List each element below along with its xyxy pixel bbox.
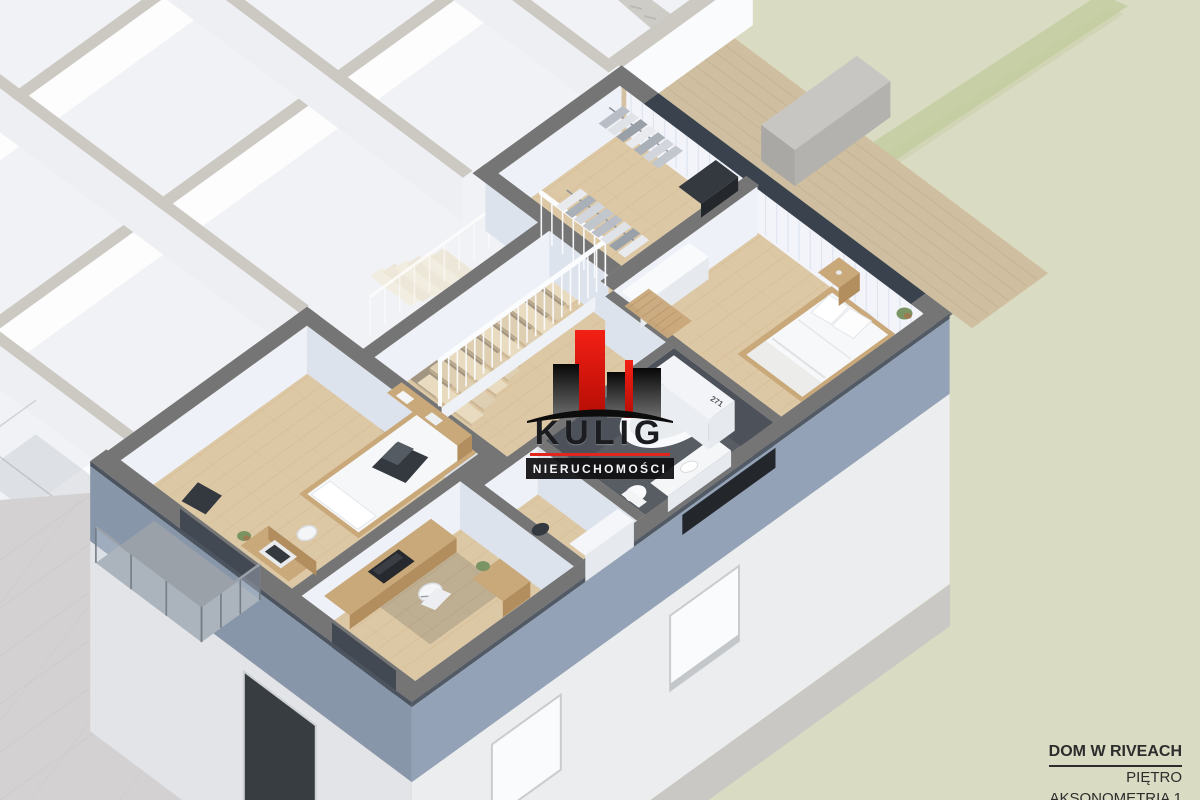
floorplan-render-page: 271 KULIG NIERUCHOMOŚCI DOM W RIVEACH PI… — [0, 0, 1200, 800]
floor-label: PIĘTRO — [1049, 767, 1182, 788]
view-label: AKSONOMETRIA 1 — [1049, 788, 1182, 800]
drawing-caption: DOM W RIVEACH PIĘTRO AKSONOMETRIA 1 — [1049, 741, 1182, 800]
axonometric-floorplan-scene: 271 — [0, 0, 1200, 800]
project-title: DOM W RIVEACH — [1049, 741, 1182, 767]
